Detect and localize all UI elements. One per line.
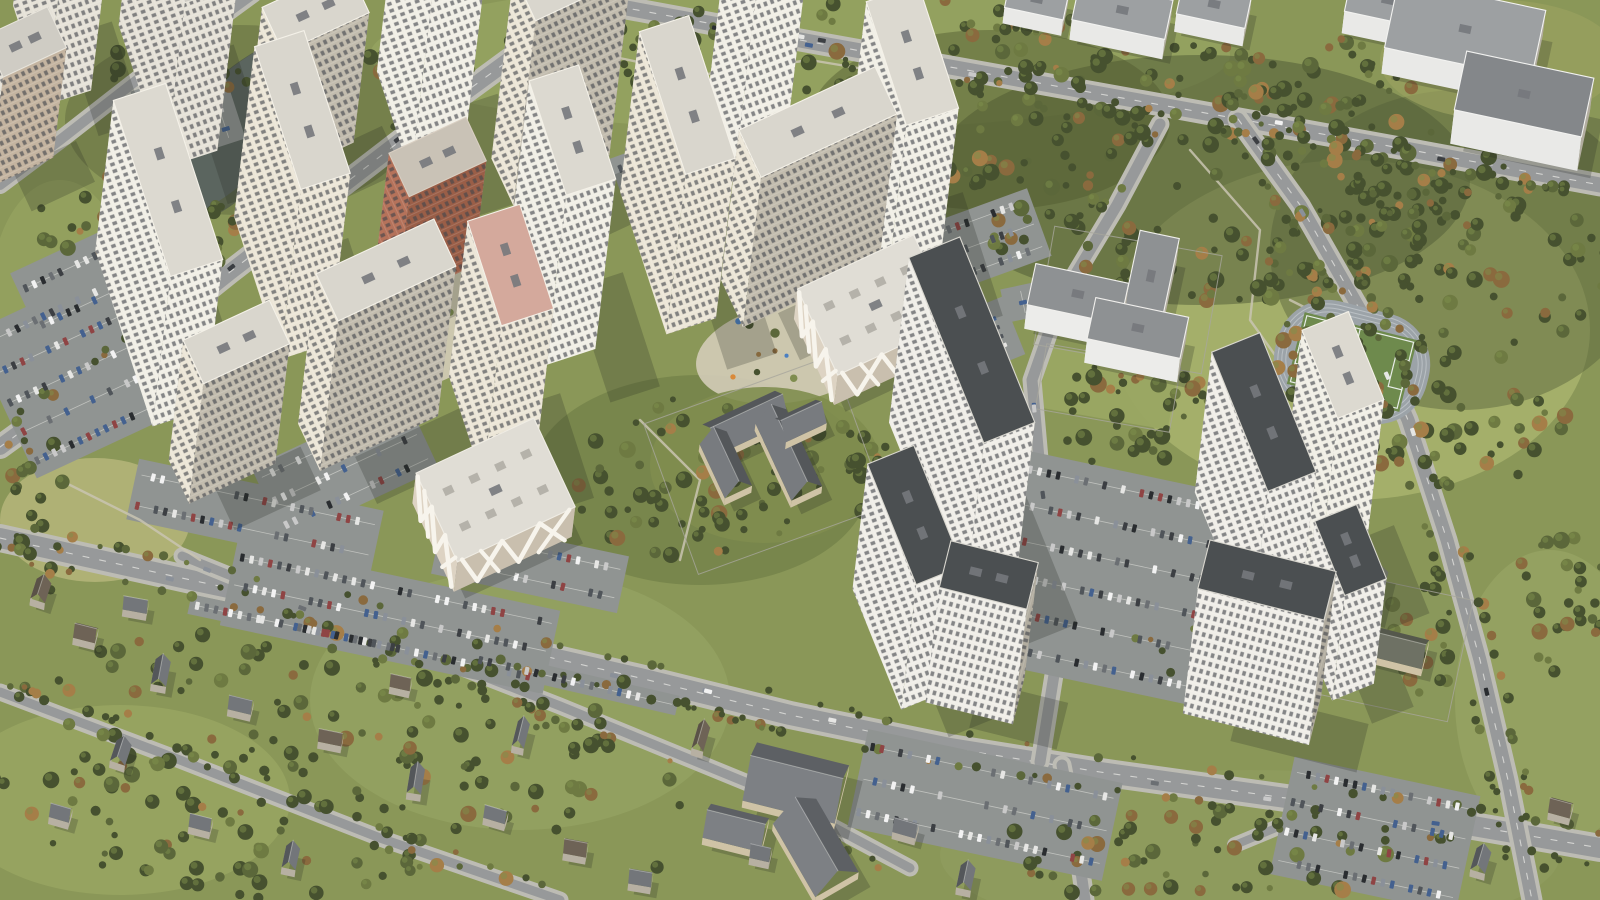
tree <box>1522 571 1531 580</box>
tree <box>249 730 259 740</box>
tree <box>299 660 309 670</box>
tree <box>239 754 248 763</box>
tree <box>1024 81 1038 95</box>
tree <box>496 655 506 665</box>
tree <box>1207 271 1224 288</box>
tree <box>1588 614 1598 624</box>
tree <box>604 653 611 660</box>
tree <box>1429 552 1439 562</box>
tree <box>1540 308 1550 318</box>
tree <box>1252 111 1261 120</box>
tree <box>189 657 203 671</box>
tree <box>1557 408 1573 424</box>
tree <box>619 441 636 458</box>
tree <box>407 726 419 738</box>
tree <box>1354 172 1363 181</box>
tree <box>74 777 85 788</box>
tree <box>1020 159 1027 166</box>
tree <box>1114 787 1120 793</box>
tree <box>173 641 184 652</box>
tree <box>416 670 433 687</box>
tree <box>1346 242 1363 259</box>
tree <box>1446 650 1455 659</box>
tree <box>1302 57 1319 74</box>
tree <box>1158 110 1165 117</box>
tree <box>630 516 642 528</box>
tree <box>1312 813 1318 819</box>
tree <box>1016 771 1025 780</box>
tree <box>1395 349 1407 361</box>
tree <box>564 807 575 818</box>
tree <box>1043 179 1060 196</box>
tree <box>1119 379 1127 387</box>
tree <box>1339 287 1346 294</box>
tree <box>1502 845 1510 853</box>
tree <box>1427 199 1434 206</box>
tree <box>1111 98 1119 106</box>
tree <box>241 644 257 660</box>
tree <box>648 490 662 504</box>
tree <box>1310 143 1317 150</box>
tree <box>1272 818 1283 829</box>
tree <box>1324 216 1330 222</box>
tree <box>1541 536 1554 549</box>
tree <box>344 591 351 598</box>
tree <box>1242 129 1250 137</box>
tree <box>1366 293 1376 303</box>
tree <box>154 839 168 853</box>
tree <box>1522 813 1530 821</box>
tree <box>519 682 529 692</box>
tree <box>1211 247 1218 254</box>
tree <box>235 890 244 899</box>
tree <box>50 840 56 846</box>
tree <box>1163 879 1178 894</box>
tree <box>629 44 637 52</box>
tree <box>1313 260 1325 272</box>
tree <box>1510 393 1524 407</box>
tree <box>881 443 889 451</box>
tree <box>693 6 705 18</box>
tree <box>1145 105 1153 113</box>
tree <box>1079 260 1093 274</box>
tree <box>485 719 495 729</box>
tree <box>972 150 988 166</box>
tree <box>1130 106 1145 121</box>
tree <box>1271 200 1277 206</box>
tree <box>1054 67 1070 83</box>
tree <box>1083 180 1093 190</box>
tree <box>1081 836 1094 849</box>
tree <box>1548 665 1560 677</box>
tree <box>977 91 984 98</box>
tree <box>373 661 380 668</box>
tree <box>1090 885 1102 897</box>
tree <box>765 687 772 694</box>
tree <box>1414 256 1423 265</box>
tree <box>541 637 552 648</box>
tree <box>172 743 182 753</box>
tree <box>1224 770 1234 780</box>
tree <box>1016 176 1024 184</box>
tree <box>434 695 444 705</box>
tree <box>97 728 110 741</box>
tree <box>1170 108 1182 120</box>
tree <box>776 530 782 536</box>
tree <box>79 751 90 762</box>
tree <box>1221 128 1227 134</box>
tree <box>1371 153 1385 167</box>
tree <box>588 703 603 718</box>
tree <box>1399 281 1407 289</box>
tree <box>1387 210 1393 216</box>
tree <box>1232 883 1240 891</box>
tree <box>1507 734 1517 744</box>
tree <box>510 782 519 791</box>
tree <box>538 670 546 678</box>
tree <box>189 861 204 876</box>
tree <box>1496 177 1510 191</box>
tree <box>1072 373 1081 382</box>
tree <box>1173 182 1181 190</box>
tree <box>1128 854 1141 867</box>
tree <box>1060 151 1069 160</box>
tree <box>43 772 60 789</box>
tree <box>30 524 39 533</box>
tree <box>676 801 684 809</box>
tree <box>882 717 891 726</box>
tree <box>635 461 644 470</box>
tree <box>588 433 604 449</box>
tree <box>571 719 583 731</box>
tree <box>253 843 269 859</box>
tree <box>1428 169 1436 177</box>
tree <box>102 346 110 354</box>
tree <box>99 861 106 868</box>
tree <box>214 673 228 687</box>
tree <box>983 164 1000 181</box>
tree <box>45 235 58 248</box>
tree <box>769 725 775 731</box>
tree <box>1464 421 1479 436</box>
tree <box>999 159 1015 175</box>
tree <box>1533 606 1545 618</box>
tree <box>187 591 198 602</box>
tree <box>63 684 76 697</box>
tree <box>68 796 78 806</box>
tree <box>477 686 487 696</box>
tree <box>1348 51 1356 59</box>
tree <box>1023 215 1032 224</box>
tree <box>106 660 119 673</box>
tree <box>714 516 729 531</box>
tree <box>1430 451 1441 462</box>
tree <box>252 874 268 890</box>
tree <box>1148 637 1153 642</box>
tree <box>609 530 625 546</box>
tree <box>297 789 312 804</box>
tree <box>1018 59 1034 75</box>
tree <box>1109 408 1125 424</box>
tree <box>1425 628 1438 641</box>
tree <box>1495 193 1502 200</box>
tree <box>1446 267 1458 279</box>
tree <box>1493 788 1500 795</box>
tree <box>237 809 243 815</box>
tree <box>1227 840 1242 855</box>
tree <box>1110 436 1125 451</box>
tree <box>1426 530 1434 538</box>
tree <box>1089 815 1100 826</box>
tree <box>26 448 33 455</box>
tree <box>1083 241 1093 251</box>
tree <box>1575 309 1586 320</box>
tree <box>1298 147 1306 155</box>
tree <box>1463 221 1471 229</box>
tree <box>379 872 387 880</box>
tree <box>1399 360 1411 372</box>
tree <box>1446 610 1452 616</box>
tree <box>1442 212 1451 221</box>
tree <box>1490 650 1499 659</box>
tree <box>453 849 459 855</box>
tree <box>1395 325 1403 333</box>
tree <box>277 705 290 718</box>
suburb-house <box>627 869 653 895</box>
tree <box>1193 398 1199 404</box>
tree <box>1260 105 1270 115</box>
tree <box>633 419 640 426</box>
tree <box>869 856 875 862</box>
tree <box>538 881 546 889</box>
tree <box>1195 796 1204 805</box>
tree <box>218 807 228 817</box>
tree <box>1418 174 1431 187</box>
tree <box>1289 228 1298 237</box>
tree <box>1393 192 1401 200</box>
tree <box>55 676 63 684</box>
tree <box>829 43 846 60</box>
playground-equipment <box>730 374 735 379</box>
tree <box>274 699 281 706</box>
tree <box>122 545 130 553</box>
tree <box>1381 836 1390 845</box>
tree <box>855 711 862 718</box>
tree <box>1431 380 1445 394</box>
tree <box>198 803 206 811</box>
tree <box>1052 134 1064 146</box>
tree <box>186 678 193 685</box>
tree <box>1094 753 1103 762</box>
tree <box>327 644 337 654</box>
tree <box>1265 183 1271 189</box>
tree <box>1085 369 1102 386</box>
tree <box>1376 220 1387 231</box>
tree <box>352 812 362 822</box>
tree <box>1259 774 1264 779</box>
tree <box>146 732 154 740</box>
tree <box>1116 389 1121 394</box>
tree <box>1527 846 1536 855</box>
tree <box>1154 226 1162 234</box>
tree <box>129 685 142 698</box>
tree <box>1471 218 1484 231</box>
tree <box>1297 92 1313 108</box>
tree <box>699 507 710 518</box>
tree <box>21 437 28 444</box>
tree <box>499 871 514 886</box>
tree <box>972 762 981 771</box>
tree <box>1490 293 1498 301</box>
tree <box>254 576 260 582</box>
tree <box>1157 450 1172 465</box>
tree <box>1415 295 1423 303</box>
tree <box>1295 81 1302 88</box>
tree <box>1277 104 1291 118</box>
tree <box>528 784 544 800</box>
tree <box>280 817 289 826</box>
tree <box>1348 110 1355 117</box>
tree <box>955 762 963 770</box>
tree <box>1076 212 1083 219</box>
tree <box>1434 570 1446 582</box>
tree <box>1526 592 1541 607</box>
tree <box>1407 189 1417 199</box>
tree <box>135 637 144 646</box>
tree <box>1587 234 1595 242</box>
tree <box>1231 138 1238 145</box>
tree <box>1061 122 1073 134</box>
tree <box>121 783 131 793</box>
tree <box>594 682 599 687</box>
tree <box>850 453 866 469</box>
tree <box>104 776 120 792</box>
tree <box>680 697 690 707</box>
tree <box>967 19 976 28</box>
tree <box>1413 233 1427 247</box>
tree <box>1023 856 1037 870</box>
tree <box>487 863 494 870</box>
tree <box>1516 557 1528 569</box>
tree <box>1474 597 1484 607</box>
tree <box>184 560 189 565</box>
tree <box>1075 429 1092 446</box>
tree <box>159 551 168 560</box>
tree <box>1229 115 1238 124</box>
tree <box>1443 479 1455 491</box>
tree <box>1114 109 1130 125</box>
tree <box>1254 818 1267 831</box>
tree <box>1476 804 1486 814</box>
tree <box>1584 861 1589 866</box>
suburb-house <box>749 844 773 870</box>
tree <box>1434 674 1446 686</box>
tree <box>1465 244 1476 255</box>
tree <box>1419 334 1426 341</box>
tree <box>594 717 606 729</box>
tree <box>1502 308 1513 319</box>
tree <box>79 191 92 204</box>
tree <box>1318 208 1323 213</box>
tree <box>1063 182 1070 189</box>
tree <box>1152 131 1158 137</box>
tree <box>1422 523 1429 530</box>
tree <box>1311 296 1325 310</box>
tree <box>1388 114 1404 130</box>
tree <box>1381 255 1398 272</box>
tree <box>624 69 633 78</box>
tree <box>1511 339 1518 346</box>
tree <box>651 861 664 874</box>
tree <box>1175 92 1181 98</box>
tree <box>1078 392 1090 404</box>
tree <box>91 806 101 816</box>
tree <box>1443 158 1457 172</box>
tree <box>1531 816 1541 826</box>
tree <box>714 547 723 556</box>
playground-equipment <box>784 354 788 358</box>
tree <box>596 464 605 473</box>
tree <box>843 57 848 62</box>
tree <box>294 695 309 710</box>
tree <box>1428 129 1435 136</box>
tree <box>1437 169 1445 177</box>
tree <box>228 566 236 574</box>
tree <box>1202 136 1219 153</box>
tree <box>1436 619 1451 634</box>
tree <box>433 679 442 688</box>
tree <box>308 752 318 762</box>
tree <box>1118 184 1127 193</box>
tree <box>955 79 963 87</box>
tree <box>1570 213 1584 227</box>
tree <box>1106 148 1117 159</box>
tree <box>1090 57 1106 73</box>
tree <box>964 77 970 83</box>
tree <box>1454 442 1467 455</box>
tree <box>652 402 664 414</box>
tree <box>1467 808 1476 817</box>
tree <box>1493 271 1510 288</box>
tree <box>1442 295 1458 311</box>
tree <box>1542 184 1548 190</box>
tree <box>81 221 91 231</box>
tree <box>1361 280 1367 286</box>
tree <box>699 526 706 533</box>
tree <box>324 660 340 676</box>
tree <box>1208 801 1217 810</box>
tree <box>583 737 599 753</box>
tree <box>215 872 225 882</box>
tree <box>60 240 76 256</box>
tree <box>1513 470 1522 479</box>
tree <box>1339 210 1352 223</box>
tree <box>457 863 463 869</box>
tree <box>1524 786 1533 795</box>
tree <box>1177 134 1188 145</box>
tree <box>277 826 285 834</box>
tree <box>977 101 988 112</box>
tree <box>1063 113 1070 120</box>
tree <box>1004 67 1012 75</box>
tree <box>1556 856 1563 863</box>
tree <box>150 756 165 771</box>
tree <box>1487 631 1496 640</box>
tree <box>261 641 272 652</box>
tree <box>108 717 115 724</box>
tree <box>1282 215 1291 224</box>
tree <box>467 682 476 691</box>
